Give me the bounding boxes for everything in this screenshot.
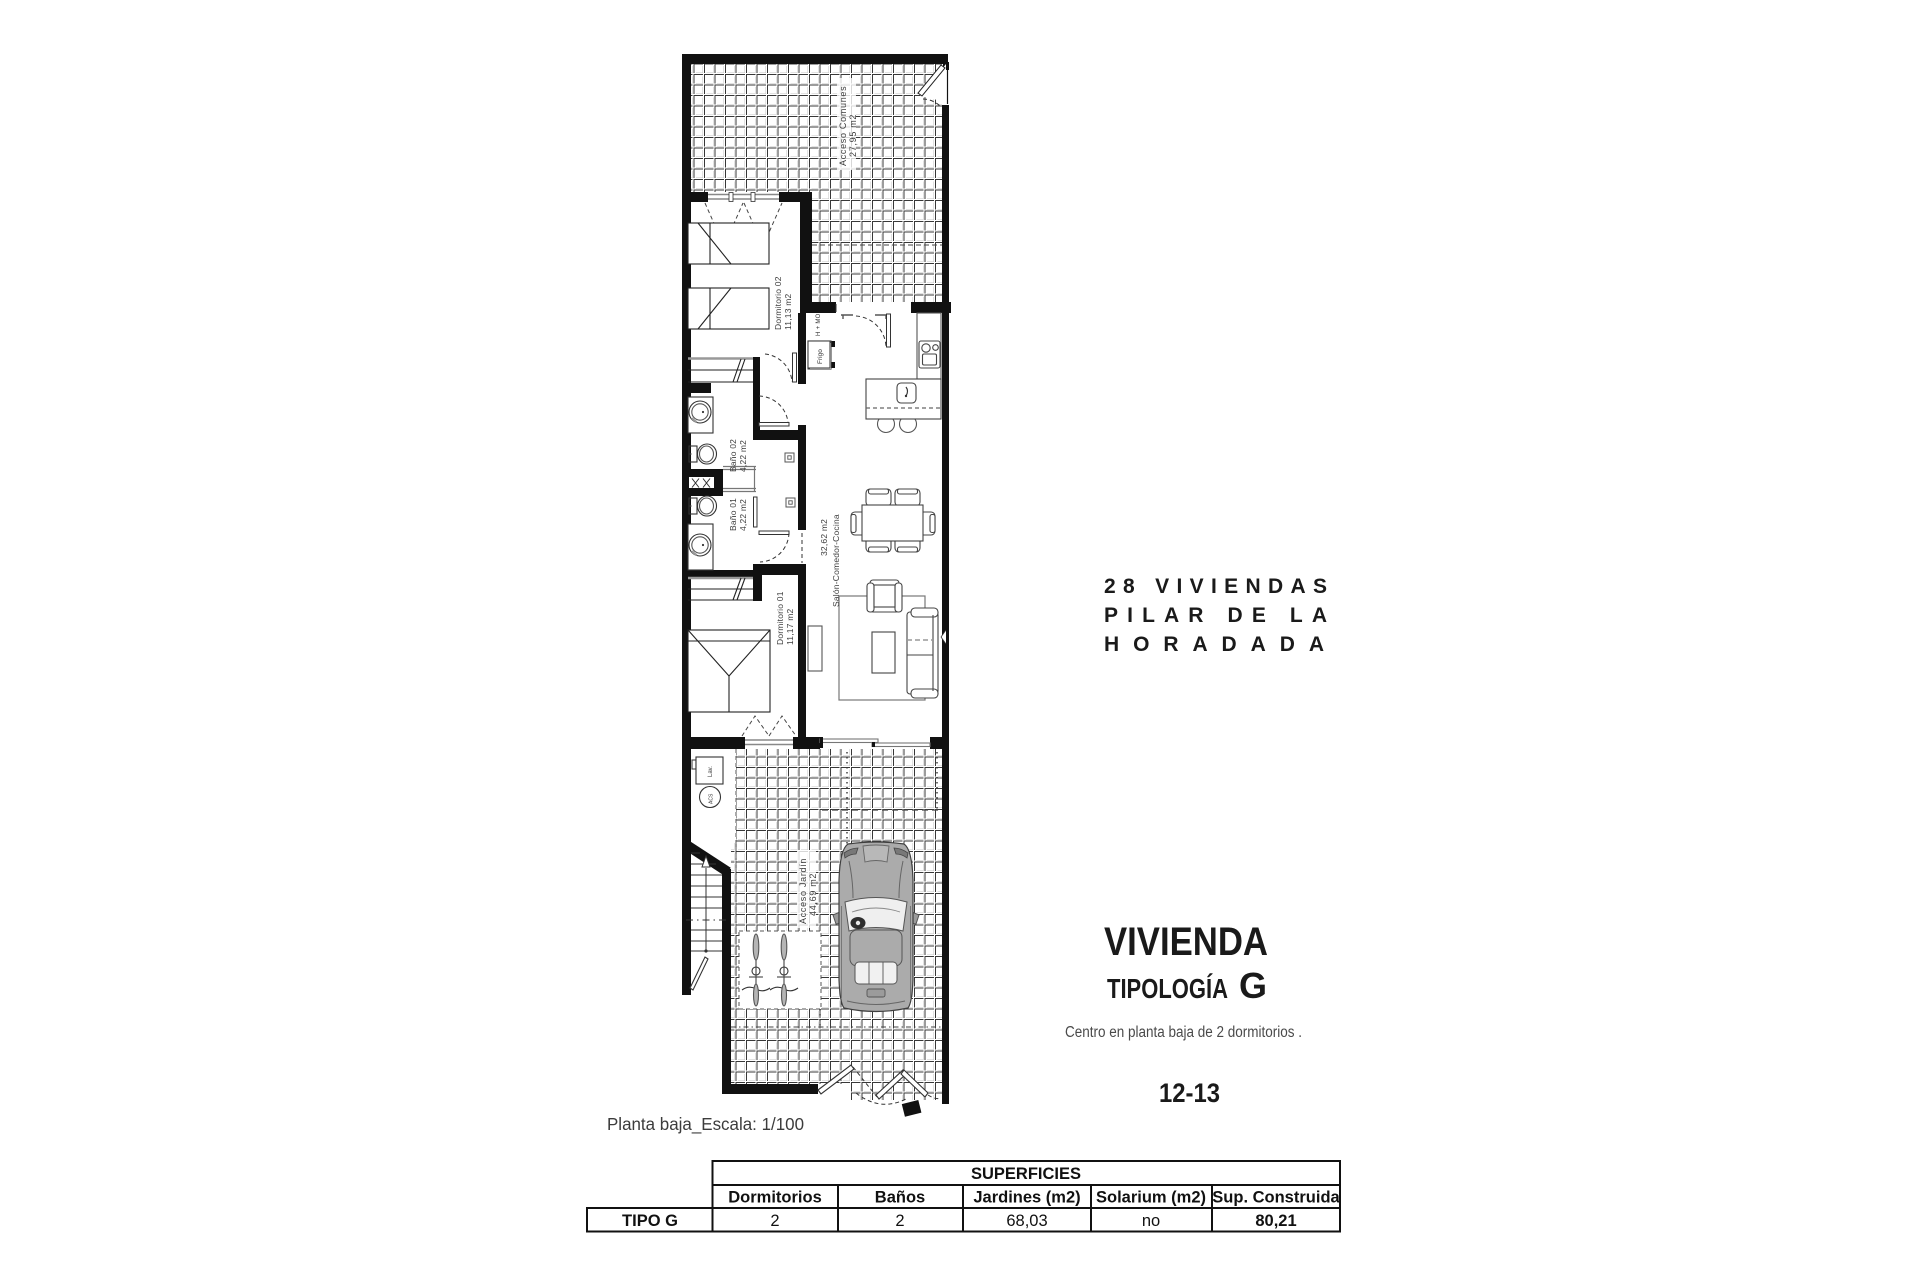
- svg-text:32,62 m2: 32,62 m2: [819, 519, 829, 556]
- svg-text:SUPERFICIES: SUPERFICIES: [971, 1165, 1081, 1183]
- svg-text:Jardines (m2): Jardines (m2): [973, 1189, 1080, 1207]
- svg-text:Solarium (m2): Solarium (m2): [1096, 1189, 1206, 1207]
- svg-text:VIVIENDA: VIVIENDA: [1104, 920, 1268, 964]
- svg-text:TIPO G: TIPO G: [622, 1212, 678, 1230]
- svg-text:44,69 m2: 44,69 m2: [808, 873, 818, 916]
- svg-text:4,22 m2: 4,22 m2: [738, 440, 748, 472]
- svg-text:11,13 m2: 11,13 m2: [783, 294, 793, 330]
- svg-text:Sup. Construida: Sup. Construida: [1212, 1189, 1340, 1207]
- svg-text:2: 2: [895, 1212, 904, 1230]
- svg-text:27,95 m2: 27,95 m2: [848, 114, 858, 157]
- svg-text:Baños: Baños: [875, 1189, 925, 1207]
- svg-text:Dormitorios: Dormitorios: [728, 1189, 822, 1207]
- svg-text:11,17 m2: 11,17 m2: [785, 609, 795, 645]
- svg-text:H + MO: H + MO: [816, 313, 822, 336]
- svg-text:Frigo: Frigo: [817, 349, 824, 364]
- svg-text:68,03: 68,03: [1006, 1212, 1047, 1230]
- svg-text:ACS: ACS: [709, 793, 715, 804]
- svg-text:Acceso Jardín: Acceso Jardín: [798, 858, 808, 924]
- svg-text:80,21: 80,21: [1255, 1212, 1296, 1230]
- svg-text:4,22 m2: 4,22 m2: [738, 499, 748, 531]
- svg-text:Dormitorio 02: Dormitorio 02: [773, 276, 783, 330]
- svg-text:Salón-Comedor-Cocina: Salón-Comedor-Cocina: [831, 514, 841, 607]
- svg-text:2: 2: [770, 1212, 779, 1230]
- svg-text:12-13: 12-13: [1159, 1078, 1220, 1108]
- svg-text:no: no: [1142, 1212, 1160, 1230]
- svg-text:Centro en planta baja de 2 dor: Centro en planta baja de 2 dormitorios .: [1065, 1024, 1302, 1041]
- svg-text:Baño 01: Baño 01: [728, 498, 738, 531]
- svg-text:Dormitorio 01: Dormitorio 01: [775, 591, 785, 645]
- svg-text:TIPOLOGÍA: TIPOLOGÍA: [1107, 973, 1228, 1004]
- svg-text:Lav.: Lav.: [708, 766, 714, 777]
- svg-text:Planta baja_Escala: 1/100: Planta baja_Escala: 1/100: [607, 1114, 804, 1135]
- svg-text:G: G: [1239, 965, 1267, 1006]
- svg-text:Acceso Comunes: Acceso Comunes: [838, 86, 848, 166]
- svg-text:Baño 02: Baño 02: [728, 439, 738, 472]
